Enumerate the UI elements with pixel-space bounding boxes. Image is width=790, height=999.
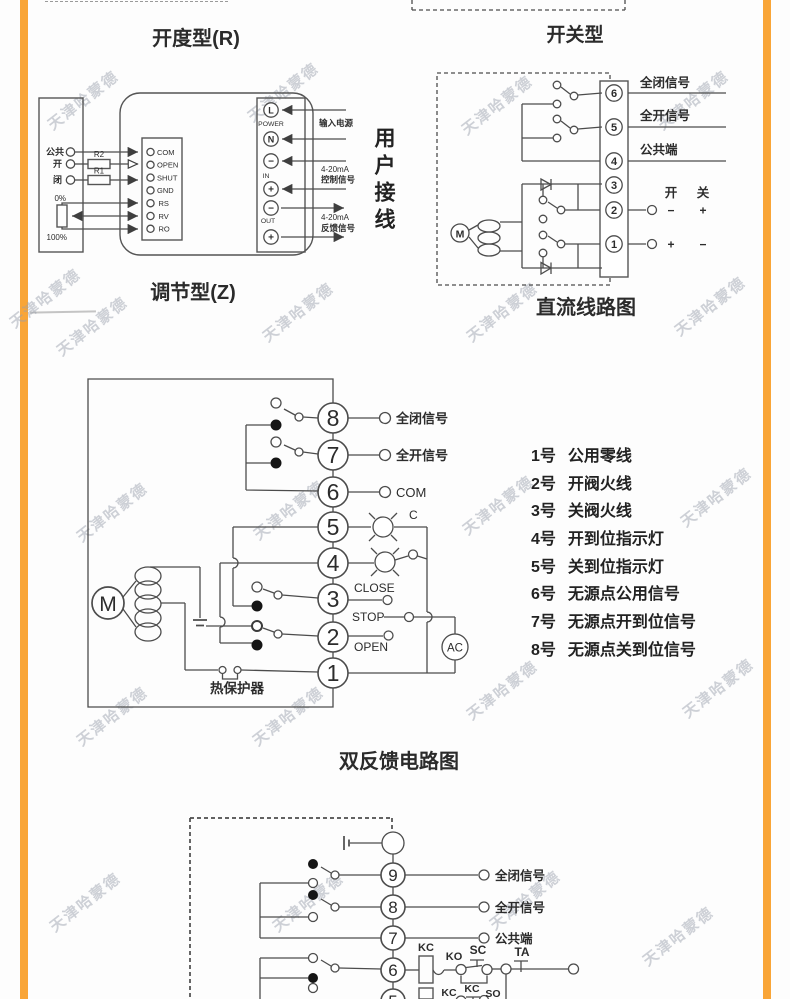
common-label: 公共 [46,146,64,157]
pin-circles [147,148,154,232]
ground-symbol [193,620,207,626]
fb-term-2: 2 [327,624,340,650]
stop-label: STOP [352,610,384,624]
pot-0-label: 0% [54,194,66,203]
fb-full-close-label: 全闭信号 [395,411,448,426]
pin-ro: RO [159,225,170,234]
dc-row2-minus: − [667,204,674,218]
ctrl-ma-label: 4-20mA [321,165,350,174]
double-fb-dashed-box [190,818,392,999]
db-common-label: 公共端 [495,931,533,946]
lamp-c-label: C [409,508,418,522]
actuator-dashed-box [437,73,610,285]
dc-full-open-label: 全开信号 [639,108,690,123]
dc-row1-minus: − [699,238,706,252]
fb-full-open-label: 全开信号 [395,448,448,463]
terminal-out-minus: − [268,204,274,215]
kc3-label: KC [464,983,480,995]
resistor-r1 [88,176,110,185]
thermal-protector [161,603,318,679]
fb-motor: M [92,567,161,641]
open-label: 开 [53,159,62,169]
kc-label: KC [418,942,434,954]
db-term-8: 8 [388,898,397,917]
db-term-7: 7 [388,929,397,948]
close-label: 闭 [53,174,62,185]
potentiometer [57,205,67,227]
thermal-protector-label: 热保护器 [210,680,264,696]
kc-relay-coil-2 [419,988,433,999]
dc-term-4: 4 [611,156,618,168]
fb-term-8: 8 [327,405,340,431]
fb-upper-contacts [246,398,318,491]
fb-lower-contacts [252,582,318,650]
dc-close-header: 关 [697,185,710,200]
dc-motor-label: M [456,229,465,241]
terminal-n: N [268,135,275,145]
db-term-5: 5 [388,992,397,999]
lamp-open-indicator [348,548,427,576]
dc-open-header: 开 [665,186,678,200]
db-term-9: 9 [388,866,397,885]
terminal-in-plus: + [268,185,274,196]
fb-term-5: 5 [327,514,340,540]
dc-circuit-diagram: 6 5 4 3 2 1 全闭信号 全开信号 公共端 开 关 − + + − [412,0,726,285]
terminal-out-plus: + [268,233,274,244]
pin-gnd: GND [157,186,174,195]
so-label: SO [485,988,500,999]
fb-term-7: 7 [327,442,340,468]
kc2-label: KC [441,987,457,999]
manual-page: 天津哈蒙德 天津哈蒙德 天津哈蒙德 天津哈蒙德 天津哈蒙德 天津哈蒙德 天津哈蒙… [0,0,790,999]
dc-term-3: 3 [611,180,617,192]
dc-common-label: 公共端 [640,142,678,157]
pin-shut: SHUT [157,173,178,182]
supply-label: 输入电源 [319,118,354,128]
dc-term-2: 2 [611,205,617,217]
dashed-remnant-top [412,0,625,10]
r2-label: R2 [94,150,105,159]
ac-label: AC [447,643,463,655]
in-group-label: IN [263,173,270,180]
db-full-open-label: 全开信号 [494,900,545,915]
dc-row1-plus: + [667,238,674,252]
fb-term-6: 6 [327,479,340,505]
db-full-close-label: 全闭信号 [494,868,545,883]
dc-term-1: 1 [611,239,617,251]
dc-full-close-label: 全闭信号 [639,75,690,90]
pot-100-label: 100% [47,233,67,242]
pin-open: OPEN [157,161,178,170]
r1-label: R1 [94,167,105,176]
dc-term-6: 6 [611,88,617,100]
close-label: CLOSE [354,581,395,595]
fb-term-4: 4 [327,550,340,576]
db-left-contacts [260,860,381,999]
fb-term-3: 3 [327,586,340,612]
regulating-type-diagram: 公共 开 闭 R2 R1 0% 100% [39,93,356,255]
ctrl-signal-label: 控制信号 [321,175,356,185]
pin-com: COM [157,148,175,157]
ta-label: TA [514,945,529,959]
terminal-in-minus: − [268,157,274,168]
power-group-label: POWER [258,121,284,128]
out-group-label: OUT [261,218,275,225]
pin-rv: RV [159,212,169,221]
open-label: OPEN [354,640,388,654]
fb-com-label: COM [396,485,426,500]
dc-limit-switches [522,81,602,161]
dc-reversing-circuit [500,179,602,274]
terminal-l: L [268,106,274,116]
fb-ma-label: 4-20mA [321,213,350,222]
sc-label: SC [470,943,487,957]
fb-signal-label: 反馈信号 [321,223,356,233]
feedback-circuit-diagram: 8 7 6 5 4 3 2 1 全闭信号 全开信号 COM C [88,379,468,707]
db-term-6: 6 [388,961,397,980]
ko-label: KO [446,951,463,963]
circuit-drawings: 公共 开 闭 R2 R1 0% 100% [0,0,790,999]
fb-motor-label: M [99,593,117,616]
dc-term-5: 5 [611,122,617,134]
ground-node [344,832,404,854]
double-feedback-diagram: 9 8 7 6 5 全闭信号 全开信号 公共端 [190,818,579,999]
dc-motor: M [451,220,500,256]
dc-row2-plus: + [699,204,706,218]
kc-relay-coil [419,956,433,983]
fb-term-1: 1 [327,660,340,686]
pin-rs: RS [159,199,169,208]
